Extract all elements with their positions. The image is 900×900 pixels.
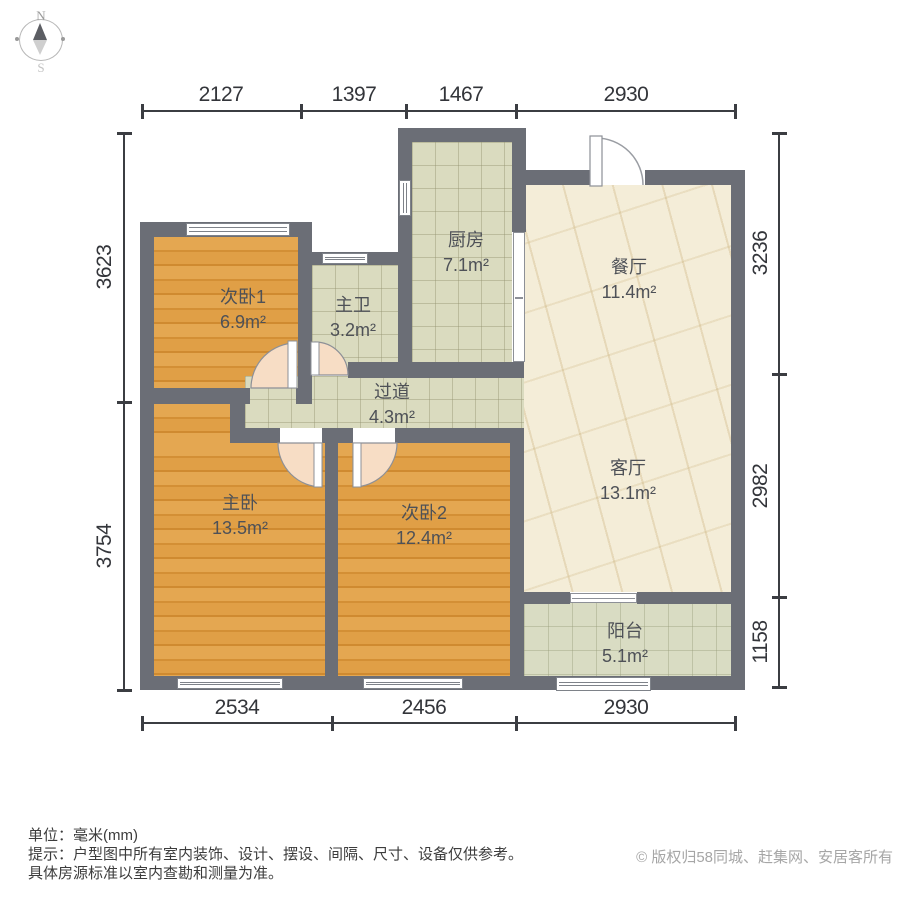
label-hallway-area: 4.3m² bbox=[369, 405, 415, 430]
label-hallway: 过道 4.3m² bbox=[369, 380, 415, 430]
label-kitchen: 厨房 7.1m² bbox=[443, 228, 489, 278]
door-leaf-master-bedroom bbox=[314, 443, 322, 487]
dim-top-4: 2930 bbox=[604, 83, 649, 107]
footer-tip-line1: 提示：户型图中所有室内装饰、设计、摆设、间隔、尺寸、设备仅供参考。 bbox=[28, 843, 523, 864]
dim-top-1: 2127 bbox=[199, 83, 244, 107]
door-leaf-entrance bbox=[590, 136, 602, 186]
label-master-bath: 主卫 3.2m² bbox=[330, 293, 376, 343]
doors-overlay bbox=[0, 0, 900, 900]
door-leaf-bedroom2 bbox=[353, 443, 361, 487]
label-bedroom1: 次卧1 6.9m² bbox=[220, 285, 266, 335]
footer-tip-line2: 具体房源标准以室内查勘和测量为准。 bbox=[28, 862, 283, 883]
dim-top-3: 1467 bbox=[439, 83, 484, 107]
label-living-room-name: 客厅 bbox=[600, 456, 656, 481]
dim-bottom-1: 2534 bbox=[215, 696, 260, 720]
label-master-bedroom-area: 13.5m² bbox=[212, 516, 268, 541]
footer-copyright: © 版权归58同城、赶集网、安居客所有 bbox=[636, 846, 893, 867]
dim-bottom-3: 2930 bbox=[604, 696, 649, 720]
label-living-room-area: 13.1m² bbox=[600, 481, 656, 506]
door-arc-entrance bbox=[596, 138, 643, 185]
dim-right-1: 3236 bbox=[749, 231, 773, 276]
label-master-bath-area: 3.2m² bbox=[330, 318, 376, 343]
door-leaf-bedroom1 bbox=[288, 341, 297, 388]
label-bedroom1-area: 6.9m² bbox=[220, 310, 266, 335]
dim-bottom-2: 2456 bbox=[402, 696, 447, 720]
dim-top-2: 1397 bbox=[332, 83, 377, 107]
label-balcony-area: 5.1m² bbox=[602, 644, 648, 669]
door-leaf-master-bath bbox=[311, 342, 319, 375]
label-balcony: 阳台 5.1m² bbox=[602, 619, 648, 669]
label-master-bedroom: 主卧 13.5m² bbox=[212, 491, 268, 541]
door-arc-master-bath bbox=[315, 342, 348, 375]
dim-line-right bbox=[778, 133, 780, 687]
dim-right-2: 2982 bbox=[749, 464, 773, 509]
footer-unit-line: 单位：毫米(mm) bbox=[28, 824, 138, 845]
floorplan-canvas: N S bbox=[0, 0, 900, 900]
label-dining-room-name: 餐厅 bbox=[602, 255, 657, 280]
label-balcony-name: 阳台 bbox=[602, 619, 648, 644]
label-living-room: 客厅 13.1m² bbox=[600, 456, 656, 506]
dim-right-3: 1158 bbox=[749, 620, 773, 663]
dim-left-1: 3623 bbox=[93, 245, 117, 290]
label-bedroom2-area: 12.4m² bbox=[396, 526, 452, 551]
label-master-bedroom-name: 主卧 bbox=[212, 491, 268, 516]
dim-left-2: 3754 bbox=[93, 524, 117, 569]
dim-line-left bbox=[123, 133, 125, 690]
label-kitchen-area: 7.1m² bbox=[443, 253, 489, 278]
label-dining-room-area: 11.4m² bbox=[602, 280, 657, 305]
label-bedroom2-name: 次卧2 bbox=[396, 501, 452, 526]
label-kitchen-name: 厨房 bbox=[443, 228, 489, 253]
dim-line-top bbox=[142, 110, 735, 112]
label-bedroom1-name: 次卧1 bbox=[220, 285, 266, 310]
label-hallway-name: 过道 bbox=[369, 380, 415, 405]
dim-line-bottom bbox=[142, 722, 735, 724]
label-dining-room: 餐厅 11.4m² bbox=[602, 255, 657, 305]
label-master-bath-name: 主卫 bbox=[330, 293, 376, 318]
label-bedroom2: 次卧2 12.4m² bbox=[396, 501, 452, 551]
